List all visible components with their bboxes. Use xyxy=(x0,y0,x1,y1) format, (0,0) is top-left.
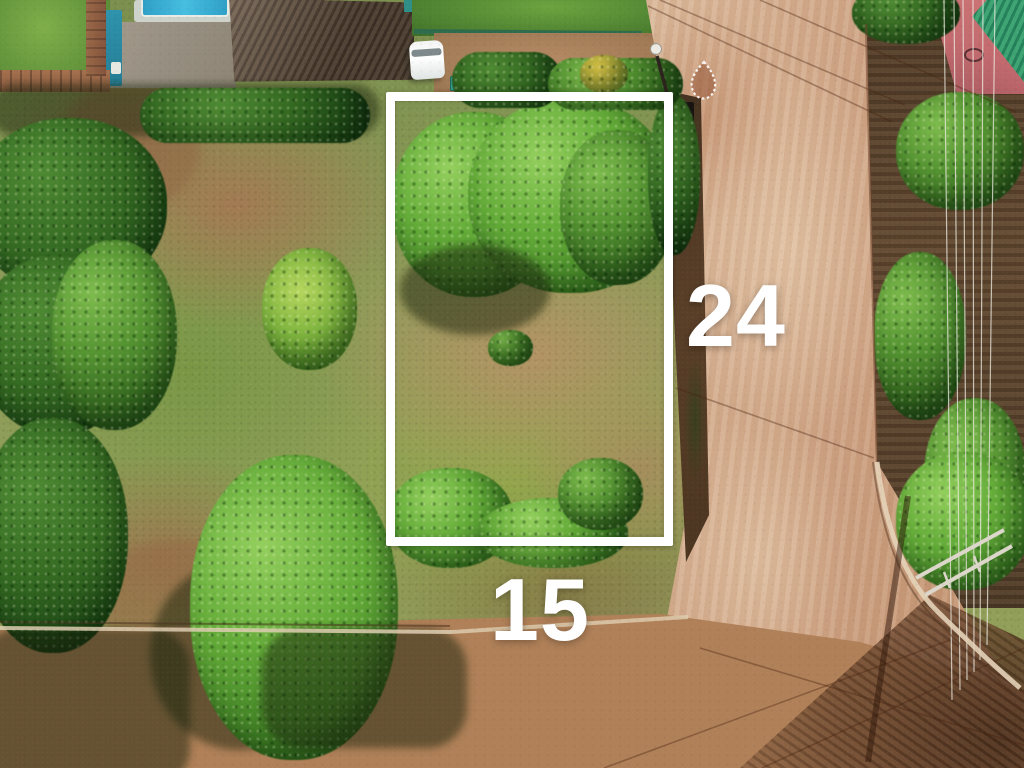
plot-outline xyxy=(386,92,673,546)
plot-depth-label: 24 xyxy=(686,272,786,360)
plot-width-label: 15 xyxy=(490,566,590,654)
aerial-photo: 24 15 xyxy=(0,0,1024,768)
